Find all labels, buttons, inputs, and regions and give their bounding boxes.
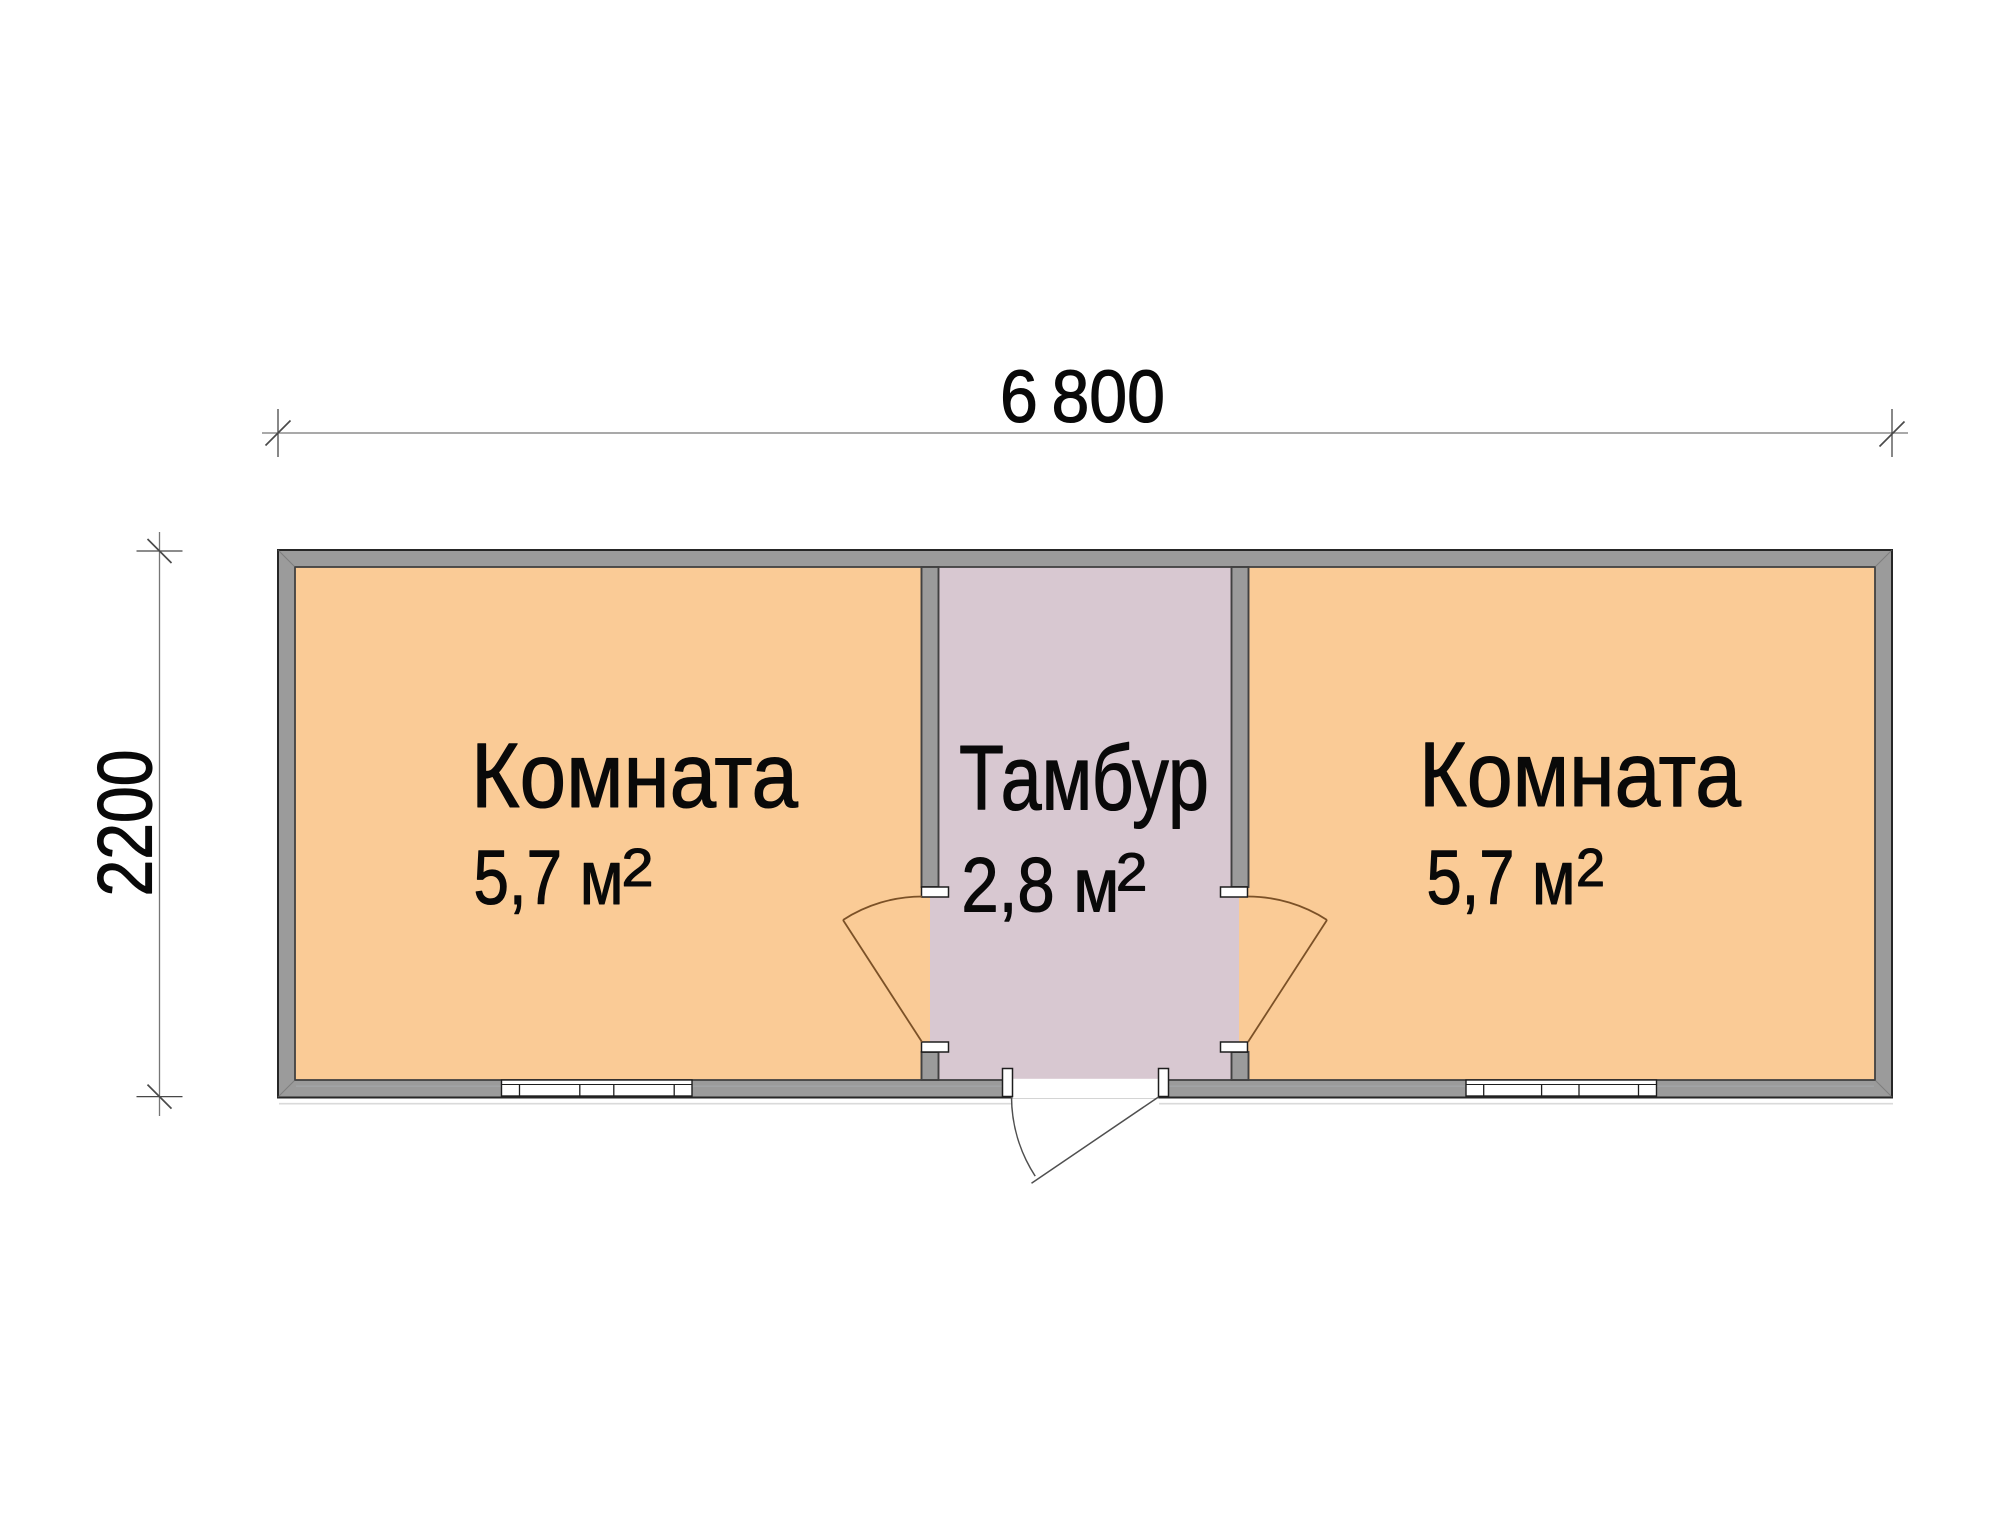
svg-text:2: 2 xyxy=(622,839,654,898)
svg-text:Тамбур: Тамбур xyxy=(959,728,1209,830)
svg-text:2,8 м: 2,8 м xyxy=(961,843,1119,929)
svg-text:5,7 м: 5,7 м xyxy=(474,835,624,921)
svg-text:5,7 м: 5,7 м xyxy=(1427,835,1576,921)
svg-text:Комната: Комната xyxy=(471,725,799,827)
svg-text:2: 2 xyxy=(1576,839,1605,898)
svg-text:Комната: Комната xyxy=(1419,724,1742,826)
svg-text:6 800: 6 800 xyxy=(1000,355,1165,438)
svg-text:2: 2 xyxy=(1116,844,1148,903)
svg-text:2200: 2200 xyxy=(83,750,169,897)
